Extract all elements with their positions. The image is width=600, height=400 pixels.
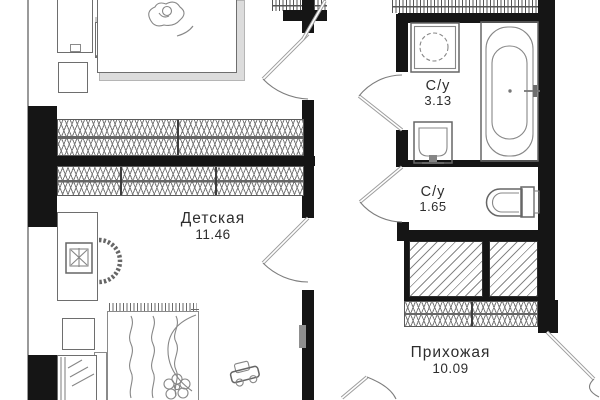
wall-left-pylon bbox=[28, 106, 57, 227]
desk-chair bbox=[99, 240, 120, 282]
wardrobe-divider bbox=[120, 167, 122, 195]
wall-center-vertical bbox=[302, 100, 314, 218]
wardrobe-bedroom bbox=[57, 119, 304, 156]
bathtub bbox=[481, 22, 540, 161]
wall-right bbox=[538, 0, 555, 333]
wall-between-rooms bbox=[28, 156, 315, 166]
detskaya-bed bbox=[107, 311, 199, 400]
door-hallway-bottom bbox=[342, 377, 396, 399]
wall-center-top-stub bbox=[302, 0, 314, 33]
room-name: С/у bbox=[393, 184, 473, 200]
room-label-bathroom: С/у 3.13 bbox=[398, 78, 478, 108]
bedroom-bed bbox=[97, 0, 237, 73]
wall-between-bathrooms bbox=[396, 160, 540, 167]
room-name: С/у bbox=[398, 78, 478, 94]
desk bbox=[57, 212, 98, 301]
door-bathroom bbox=[359, 75, 402, 130]
toy-car bbox=[228, 359, 261, 388]
room-area: 1.65 bbox=[393, 200, 473, 214]
wardrobe-divider bbox=[177, 120, 179, 155]
room-label-toilet: С/у 1.65 bbox=[393, 184, 473, 214]
floor-plan: Детская 11.46 С/у 3.13 С/у 1.65 Прихожая… bbox=[0, 0, 600, 400]
wall-left-bottom bbox=[28, 355, 57, 400]
door-entrance bbox=[547, 332, 599, 397]
wall-gray-segment bbox=[299, 325, 306, 348]
wardrobe-hallway bbox=[404, 301, 538, 327]
closet-shaft-left bbox=[409, 241, 483, 297]
wardrobe-divider bbox=[471, 302, 473, 326]
room-name: Прихожая bbox=[380, 344, 521, 361]
cabinet-handle bbox=[70, 44, 81, 52]
detskaya-nightstand bbox=[62, 318, 95, 350]
corner-wardrobe bbox=[57, 355, 97, 400]
wardrobe-detskaya bbox=[57, 166, 304, 196]
wall-toilet-bottom bbox=[397, 230, 540, 241]
wall-bathroom-top bbox=[398, 13, 540, 23]
room-area: 10.09 bbox=[380, 361, 521, 376]
wardrobe-divider bbox=[215, 167, 217, 195]
wall-entry-block bbox=[540, 300, 558, 333]
room-area: 3.13 bbox=[398, 94, 478, 108]
bedroom-nightstand bbox=[58, 62, 88, 93]
wall-bathroom-left-upper bbox=[396, 14, 408, 72]
hatched-wall-bathroom bbox=[392, 0, 538, 13]
door-bedroom bbox=[263, 34, 308, 99]
closet-shaft-right bbox=[489, 241, 538, 297]
room-area: 11.46 bbox=[143, 227, 283, 242]
washing-machine bbox=[411, 23, 459, 72]
sink bbox=[414, 122, 452, 163]
room-label-detskaya: Детская 11.46 bbox=[143, 210, 283, 242]
room-name: Детская bbox=[143, 210, 283, 227]
room-label-hallway: Прихожая 10.09 bbox=[380, 344, 521, 376]
toilet bbox=[487, 187, 540, 217]
